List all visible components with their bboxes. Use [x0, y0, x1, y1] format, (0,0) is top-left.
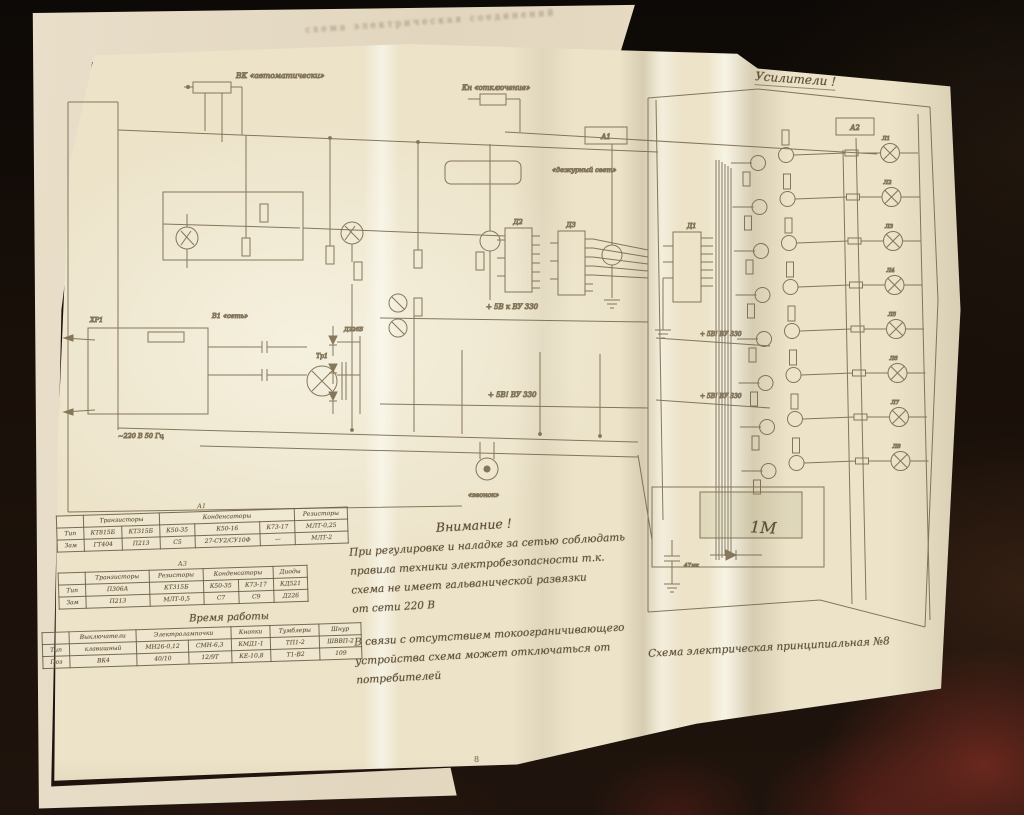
transistor-symbol: [789, 456, 804, 471]
transistor-symbol: [788, 412, 803, 427]
transistor-symbol: [751, 156, 766, 171]
junction-dot: [599, 435, 602, 438]
transistor-symbol: [779, 148, 794, 163]
warning-note: Внимание ! При регулировке и наладке за …: [348, 507, 667, 690]
transistor-leads: [345, 226, 359, 262]
amp-bus-wires: [843, 114, 930, 620]
ic-pins: [663, 238, 713, 330]
lamp-cross: [891, 366, 905, 380]
table-cell: Д226: [274, 589, 308, 602]
label-ic1: Д1: [686, 222, 696, 230]
label-ic3: Д3: [565, 221, 575, 229]
wire: [737, 329, 924, 339]
resistor-symbol: [354, 262, 362, 280]
table-cell: Зам: [59, 596, 86, 609]
label-plug: ХР1: [89, 316, 103, 324]
photo-backdrop: схема электрическая соединений: [0, 0, 1024, 815]
resistor-symbol: [788, 306, 795, 321]
buzzer-dot: [484, 466, 490, 472]
resistor-symbol: [751, 392, 758, 406]
transistor-symbol: [786, 368, 801, 383]
lamp-cross: [883, 146, 897, 160]
lamp-cross: [892, 410, 906, 424]
table-cell: С7: [203, 591, 239, 604]
resistor-symbol: [856, 458, 869, 464]
junction-dot: [539, 433, 542, 436]
label-switch-net: В1 «сеть»: [211, 312, 248, 320]
resistor-symbol: [782, 130, 789, 145]
table-cell: К50-35: [160, 524, 195, 537]
wire: [710, 550, 762, 560]
resistor-symbol: [793, 438, 800, 453]
label-buzzer: «звонок»: [468, 491, 499, 499]
transistor-symbol: [754, 244, 769, 259]
table-cell: [56, 515, 83, 528]
resistor-symbol: [260, 204, 268, 222]
relay-box: [445, 161, 521, 184]
resistor-symbol: [791, 394, 798, 409]
resistor-symbol: [326, 246, 334, 264]
wire: [352, 284, 600, 438]
lamp-cross: [894, 454, 908, 468]
ground-symbol: [604, 300, 620, 308]
table-cell: КД521: [273, 577, 307, 590]
resistor-symbol: [414, 250, 422, 268]
resistor-symbol: [784, 174, 791, 189]
wire: [163, 224, 505, 236]
wire: [742, 461, 929, 471]
label-block-a2: А2: [849, 124, 860, 132]
transistor-symbol: [783, 280, 798, 295]
table-cell: Тип: [42, 644, 69, 657]
resistor-symbol: [749, 348, 756, 362]
wire: [740, 417, 927, 427]
lamp-label: Л4: [886, 268, 896, 274]
transistor-symbol: [761, 464, 776, 479]
resistor-symbol: [414, 298, 422, 316]
ic-symbol: [558, 231, 585, 295]
resistor-symbol: [242, 238, 250, 256]
page-number: 8: [474, 755, 479, 764]
label-switch-auto: ВК «автоматически»: [235, 71, 325, 80]
wire: [731, 153, 918, 163]
table-cell: Диоды: [273, 565, 307, 578]
wire-top-rail: [118, 130, 877, 154]
amplifier-stages: Л1 Л2: [731, 130, 929, 494]
table-cell: 109: [320, 647, 362, 660]
table-cell: С9: [239, 590, 275, 603]
label-ic2: Д2: [512, 218, 522, 226]
transistor-symbol: [782, 236, 797, 251]
resistor-symbol: [853, 370, 866, 376]
table-cell: К73-17: [260, 521, 295, 534]
wire: [64, 338, 95, 412]
resistor-symbol: [745, 216, 752, 230]
resistor-symbol: [848, 238, 861, 244]
lamp-label: Л1: [881, 136, 890, 142]
resistor-symbol: [790, 350, 797, 365]
table-cell: [42, 632, 69, 645]
table-cell: 12/9Т: [189, 651, 232, 664]
capacitor-symbol: [262, 341, 267, 381]
ribbon-wires: [593, 239, 648, 278]
table-cell: [58, 572, 85, 585]
label-mains: ~220 В 50 Гц: [118, 432, 164, 440]
label-rail-3: + 5В! ВУ 330: [700, 393, 742, 400]
label-transformer: Тр1: [316, 353, 328, 360]
switch-symbol: [480, 94, 506, 105]
contact-dot: [187, 86, 190, 89]
amplifier-stage: Л6: [739, 350, 926, 406]
switch-symbol: [193, 82, 231, 93]
fuse-symbol: [148, 332, 184, 342]
resistor-symbol: [476, 252, 484, 270]
ic-symbol: [673, 232, 701, 302]
amplifier-stage: Л2: [733, 174, 920, 230]
amplifier-stage: Л1: [731, 130, 918, 186]
table-cell: 40/10: [137, 652, 189, 666]
transistor-symbol: [757, 332, 772, 347]
table-cell: ГТ404: [84, 538, 122, 551]
lamp-label: Л6: [889, 356, 899, 362]
amplifier-stage: Л8: [742, 438, 929, 494]
label-switch-off: Кн «отключение»: [461, 84, 530, 92]
label-block-a1: А1: [600, 133, 611, 141]
wire: [208, 336, 360, 414]
table-cell: Поз: [43, 656, 70, 669]
transistor-symbol: [780, 192, 795, 207]
transistor-symbol: [752, 200, 767, 215]
resistor-symbol: [746, 260, 753, 274]
lamp-cross: [888, 278, 902, 292]
resistor-symbol: [851, 326, 864, 332]
ic-pins: [497, 236, 593, 291]
resistor-symbol: [743, 172, 750, 186]
ground-symbol: [655, 330, 671, 338]
lamp-cross: [886, 234, 900, 248]
junction-dot: [329, 137, 332, 140]
amplifier-stage: Л5: [737, 306, 924, 362]
one-m-mark: 1М: [750, 517, 778, 537]
amplifier-stage: Л4: [736, 262, 923, 318]
transistor-symbol: [785, 324, 800, 339]
lamp-cross: [885, 190, 899, 204]
circuit-schematic-drawing: Л1 Л2: [0, 0, 1024, 815]
table-cell: КЕ-10,8: [231, 649, 271, 662]
transistor-symbol: [758, 376, 773, 391]
resistor-symbol: [787, 262, 794, 277]
wire: [733, 197, 920, 207]
transistor-symbol: [602, 245, 622, 265]
table-cell: МЛТ-0,5: [150, 593, 204, 607]
table-cell: К50-35: [203, 579, 239, 592]
ground-symbol: [664, 584, 680, 592]
transistor-symbol: [760, 420, 775, 435]
label-cap47: 47мк: [683, 563, 700, 569]
transistor-symbol: [480, 231, 500, 251]
table-cell: —: [260, 533, 295, 546]
table-cell: П213: [122, 537, 160, 550]
resistor-symbol: [854, 414, 867, 420]
junction-dot: [351, 429, 354, 432]
table-cell: МЛТ-2: [295, 531, 348, 545]
table-cell: Зам: [57, 539, 84, 552]
wire: [739, 373, 926, 383]
table-cell: Тип: [58, 584, 85, 597]
ic-symbol: [505, 228, 532, 292]
label-rail-0: + 5В к ВУ 330: [486, 303, 539, 311]
label-rail-1: + 5В! ВУ 330: [488, 391, 537, 399]
lamp-label: Л3: [884, 224, 894, 230]
wire: [734, 241, 921, 251]
lamp-label: Л5: [887, 312, 897, 318]
table-cell: ВК4: [70, 654, 138, 668]
table-cell: Тип: [57, 527, 84, 540]
label-duty-light: «дежурный свет»: [552, 166, 617, 174]
lamp-label: Л8: [892, 444, 902, 450]
resistor-symbol: [785, 218, 792, 233]
lamp-label: Л2: [883, 180, 893, 186]
label-rail-2: + 5В! ВУ 330: [700, 331, 742, 338]
table-cell: С5: [160, 536, 195, 549]
amplifier-stage: Л7: [740, 394, 927, 450]
transistor-symbol: [755, 288, 770, 303]
label-diode: Д226Б: [343, 327, 363, 333]
amplifier-stage: Л3: [734, 218, 921, 274]
transistor-leads: [392, 297, 404, 334]
wire: [736, 285, 923, 295]
resistor-symbol: [752, 436, 759, 450]
junction-dot: [417, 141, 420, 144]
lamp-cross: [889, 322, 903, 336]
wire: [68, 102, 118, 512]
table-cell: Т1-В2: [271, 648, 320, 662]
tables-area: А1 ТранзисторыКонденсаторыРезисторыТипКТ…: [36, 497, 377, 669]
resistor-symbol: [748, 304, 755, 318]
resistor-symbol: [850, 282, 863, 288]
lamp-label: Л7: [890, 400, 900, 406]
capacitor-symbol: [664, 540, 680, 584]
